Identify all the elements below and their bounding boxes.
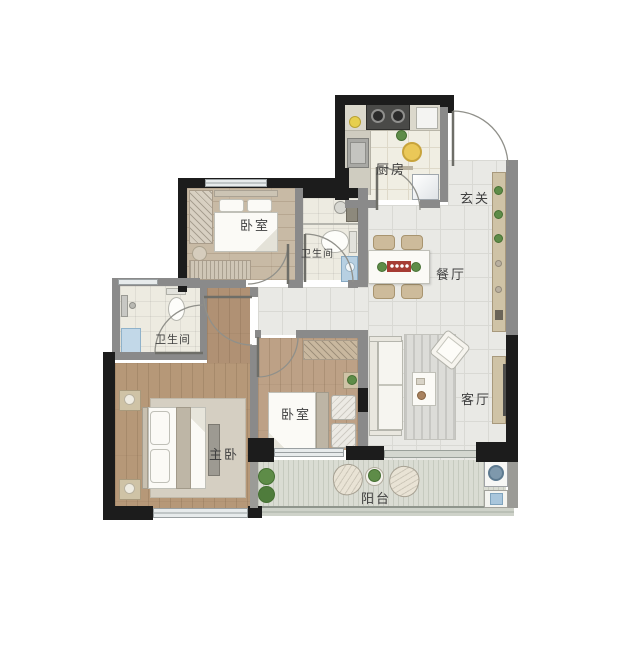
door-arc-entrance — [453, 111, 508, 166]
wall-segment — [200, 286, 207, 358]
wall-segment — [335, 95, 450, 105]
plant-kitchen — [396, 130, 407, 141]
wall-segment — [103, 352, 115, 520]
shower-divider — [303, 223, 358, 225]
master-bedroom-label: 主卧 — [209, 444, 239, 463]
pillow — [150, 411, 170, 445]
wall-segment — [250, 462, 258, 508]
pillow — [247, 199, 272, 212]
wall-segment — [178, 178, 187, 292]
bedroom-mid-label: 卧室 — [281, 404, 311, 423]
wall-segment — [440, 107, 448, 202]
plant-balcony — [258, 486, 275, 503]
wall-segment — [476, 442, 518, 462]
vanity-knob — [129, 302, 136, 309]
balcony-label: 阳台 — [361, 488, 391, 507]
master-entry-floor — [207, 287, 250, 363]
sofa-back — [369, 338, 378, 432]
wall-segment — [295, 188, 303, 288]
coffee-table-bowl — [417, 391, 426, 400]
plant-balcony-table — [368, 469, 381, 482]
sofa-armrest — [369, 430, 402, 436]
wardrobe — [303, 340, 358, 360]
living-label: 客厅 — [461, 389, 491, 408]
table-runner — [387, 261, 411, 272]
stove-burner — [391, 109, 405, 123]
cabinet-decor — [495, 310, 503, 320]
sofa-seat — [378, 340, 403, 430]
pillow — [331, 395, 356, 420]
stove-burner — [371, 109, 385, 123]
toilet — [168, 297, 185, 321]
dining-chair — [401, 284, 423, 299]
fridge — [412, 174, 439, 200]
dining-chair — [373, 235, 395, 250]
wall-segment — [250, 287, 258, 297]
plant-entrance — [494, 186, 503, 195]
bathroom-left-label: 卫生间 — [155, 331, 191, 347]
pillow — [331, 423, 356, 448]
wall-segment — [335, 95, 345, 173]
washing-machine-drum — [488, 465, 504, 481]
balcony-sliding-door — [384, 450, 478, 458]
bed-runner — [176, 407, 191, 489]
wall-segment — [358, 188, 368, 287]
wall-segment — [508, 462, 518, 508]
pillow — [219, 199, 244, 212]
wall-segment — [420, 200, 440, 208]
kitchen-sink-basin — [350, 142, 366, 164]
shoe-cabinet — [492, 172, 506, 332]
wall-segment — [248, 438, 274, 462]
bedroom-top-label: 卧室 — [240, 215, 270, 234]
wall-segment — [348, 280, 358, 288]
wardrobe — [189, 190, 213, 244]
wall-segment — [506, 335, 518, 444]
plant-bedroom — [347, 375, 357, 385]
dining-label: 餐厅 — [436, 264, 466, 283]
wall-segment — [288, 280, 303, 288]
wall-segment — [112, 352, 207, 360]
corridor-floor — [258, 287, 368, 335]
cabinet-decor — [495, 260, 502, 267]
wall-segment — [255, 330, 261, 338]
plant-entrance — [494, 210, 503, 219]
washbasin-bowl — [345, 262, 355, 272]
wall-segment — [303, 188, 365, 198]
shower-enclosure — [121, 328, 141, 354]
bathroom-main-label: 卫生间 — [301, 245, 334, 260]
bedroom-stool — [192, 246, 207, 261]
wall-segment — [346, 446, 384, 460]
lamp — [124, 394, 135, 405]
wall-segment — [112, 278, 120, 358]
lemon-decor — [349, 116, 361, 128]
wall-segment — [358, 335, 368, 388]
plant-balcony — [258, 468, 275, 485]
window — [118, 279, 158, 285]
entrance-label: 玄关 — [460, 188, 490, 207]
window — [153, 508, 248, 518]
dresser — [189, 260, 251, 280]
vanity-mirror — [121, 295, 128, 317]
window — [205, 179, 267, 187]
lamp — [124, 483, 135, 494]
bed-headboard — [214, 190, 278, 197]
plant-dining — [377, 262, 387, 272]
wall-segment — [103, 506, 153, 520]
sofa-armrest — [369, 336, 402, 342]
fridge-top — [416, 107, 438, 129]
window — [274, 448, 344, 457]
pillow — [150, 449, 170, 483]
wall-segment — [506, 160, 518, 335]
cabinet-decor — [495, 286, 502, 293]
dining-chair — [401, 235, 423, 250]
bed-runner — [316, 392, 329, 450]
wall-segment — [250, 345, 258, 440]
plant-entrance — [494, 234, 503, 243]
laundry-sink-basin — [490, 493, 503, 505]
floor-plan: 厨房 玄关 餐厅 客厅 卧室 卫生间 卫生间 主卧 卧室 阳台 — [0, 0, 636, 652]
toilet-tank — [349, 231, 357, 253]
balcony-railing — [248, 506, 514, 516]
coffee-table-tray — [416, 378, 425, 385]
kitchen-label: 厨房 — [376, 159, 406, 178]
wall-segment — [358, 388, 368, 412]
dining-chair — [373, 284, 395, 299]
plant-dining — [411, 262, 421, 272]
